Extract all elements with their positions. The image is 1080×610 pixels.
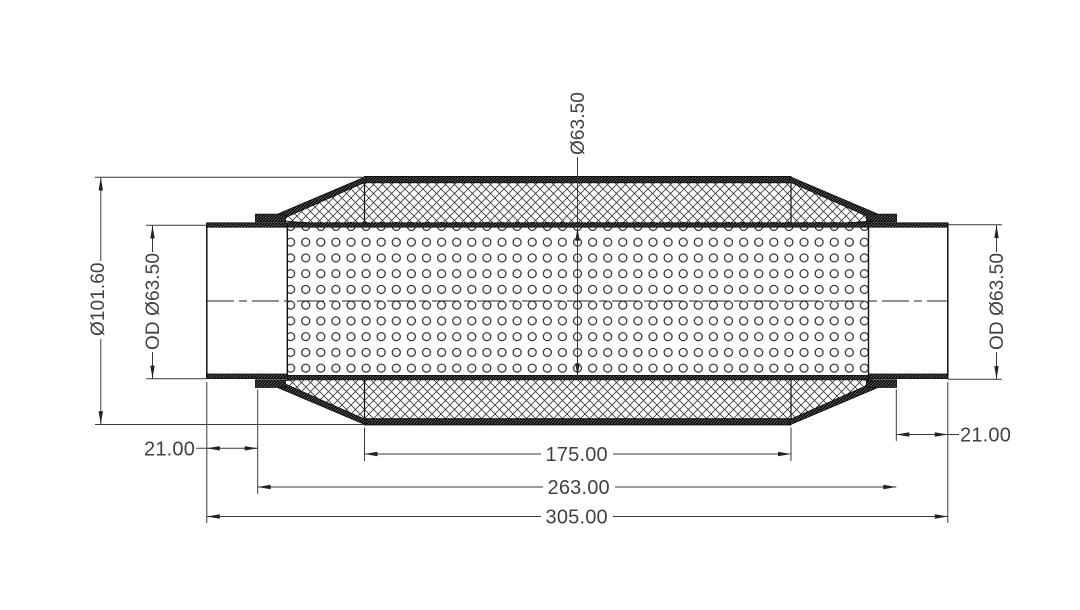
svg-text:Ø101.60: Ø101.60 <box>88 262 109 336</box>
svg-text:OD Ø63.50: OD Ø63.50 <box>143 253 164 350</box>
svg-text:305.00: 305.00 <box>546 507 608 529</box>
svg-text:OD Ø63.50: OD Ø63.50 <box>987 253 1008 350</box>
svg-text:175.00: 175.00 <box>546 444 608 466</box>
svg-text:21.00: 21.00 <box>144 439 195 461</box>
svg-text:21.00: 21.00 <box>960 425 1011 447</box>
svg-text:263.00: 263.00 <box>548 477 610 499</box>
svg-text:Ø63.50: Ø63.50 <box>568 92 589 155</box>
